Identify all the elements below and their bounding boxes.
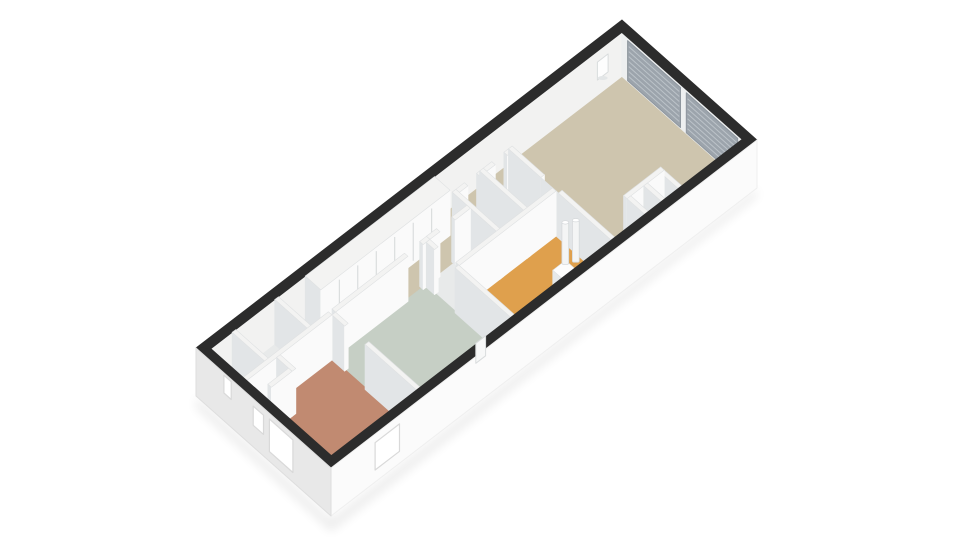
render-area [0, 0, 960, 540]
pipe-1 [562, 222, 569, 264]
wall-face-sw-green-kitchen-a [426, 242, 434, 294]
wall-face-sw-corridor-bath-b [452, 217, 456, 265]
pipe-1-cap [562, 221, 569, 224]
pipe-2-cap [572, 219, 579, 222]
wall-face-sw-corridor-green-b [420, 242, 424, 290]
nw-wall-unit-shade [598, 76, 608, 80]
wall-face-se-bedroom-green-a [345, 323, 349, 371]
floorplan-3d-view[interactable] [0, 0, 960, 540]
wall-face-se-green-kitchen-a [435, 247, 439, 295]
wall-face-se-bedroom-closet-a [292, 369, 296, 417]
pipe-2 [572, 220, 579, 262]
